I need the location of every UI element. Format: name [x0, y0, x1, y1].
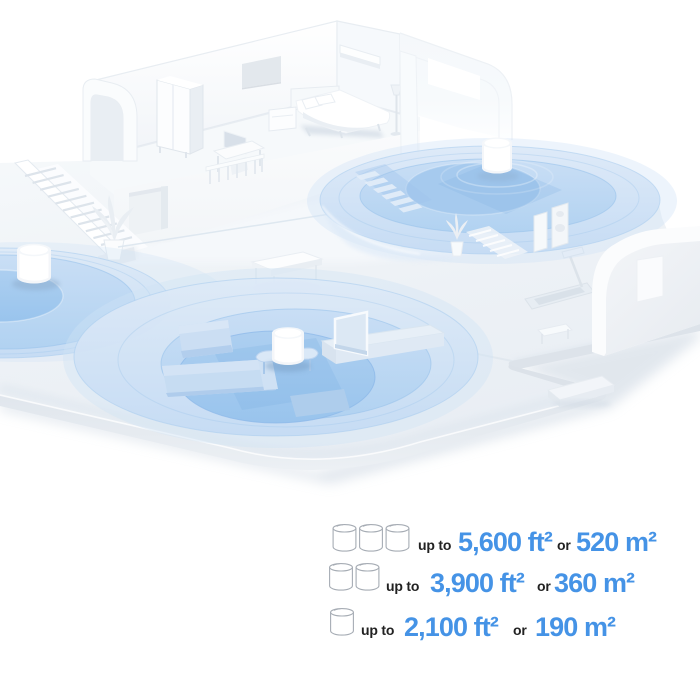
svg-text:or: or: [557, 537, 571, 553]
svg-text:5,600 ft²: 5,600 ft²: [458, 527, 553, 557]
svg-text:or: or: [537, 578, 551, 594]
svg-text:520 m²: 520 m²: [576, 527, 657, 557]
svg-text:up to: up to: [386, 578, 419, 594]
svg-text:190 m²: 190 m²: [535, 612, 616, 642]
svg-text:360 m²: 360 m²: [554, 568, 635, 598]
svg-text:up to: up to: [361, 622, 394, 638]
svg-text:2,100 ft²: 2,100 ft²: [404, 612, 499, 642]
svg-text:up to: up to: [418, 537, 451, 553]
svg-text:3,900 ft²: 3,900 ft²: [430, 568, 525, 598]
svg-text:or: or: [513, 622, 527, 638]
